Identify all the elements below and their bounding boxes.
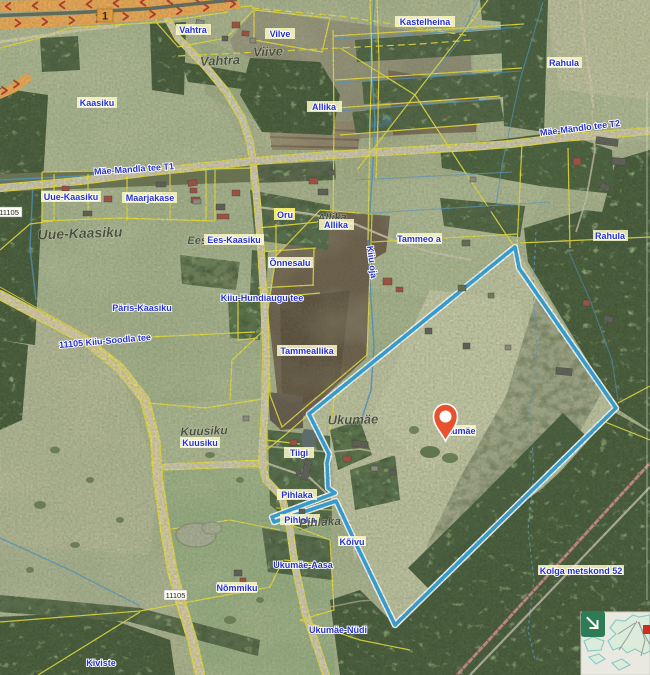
svg-text:Tammeo a: Tammeo a (397, 234, 442, 244)
svg-text:Uue-Kaasiku: Uue-Kaasiku (37, 224, 123, 243)
svg-text:Ukumäe: Ukumäe (328, 412, 379, 428)
svg-text:Maarjakase: Maarjakase (126, 193, 175, 203)
svg-text:Vahtra: Vahtra (179, 25, 208, 35)
svg-text:Õnnesalu: Õnnesalu (269, 258, 310, 268)
svg-text:11105: 11105 (0, 208, 19, 217)
svg-text:Kastelheina: Kastelheina (400, 17, 452, 27)
svg-text:Rahula: Rahula (595, 231, 626, 241)
svg-text:Kuusiku: Kuusiku (180, 423, 228, 439)
svg-text:Pihlaka: Pihlaka (299, 514, 342, 530)
svg-text:Kõivu: Kõivu (339, 537, 364, 547)
svg-text:Vilve: Vilve (270, 29, 291, 39)
svg-text:Rahula: Rahula (549, 58, 580, 68)
svg-text:Nõmmiku: Nõmmiku (216, 583, 257, 593)
svg-text:Ees-Kaasiku: Ees-Kaasiku (207, 235, 261, 245)
svg-text:1: 1 (102, 11, 108, 23)
svg-text:Oru: Oru (277, 210, 293, 220)
svg-text:11105: 11105 (166, 591, 186, 600)
svg-text:Allika: Allika (312, 102, 337, 112)
svg-text:Kaasiku: Kaasiku (80, 98, 115, 108)
svg-text:Tammeallika: Tammeallika (280, 346, 334, 356)
svg-text:Ukumäe-Nüdi: Ukumäe-Nüdi (309, 625, 367, 635)
svg-text:Kiiu-Hundiaugu tee: Kiiu-Hundiaugu tee (221, 293, 304, 303)
svg-text:Kuusiku: Kuusiku (182, 438, 218, 448)
svg-text:Tiigi: Tiigi (290, 448, 308, 458)
svg-text:Kolga metskond 52: Kolga metskond 52 (540, 566, 623, 576)
svg-text:Päris-Kaasiku: Päris-Kaasiku (112, 303, 172, 313)
svg-text:Pihlaka: Pihlaka (281, 490, 314, 500)
svg-text:Uue-Kaasiku: Uue-Kaasiku (44, 192, 99, 202)
svg-text:Vahtra: Vahtra (200, 52, 241, 69)
svg-text:Kiviste: Kiviste (86, 658, 116, 668)
svg-text:Ukumäe-Aasa: Ukumäe-Aasa (273, 560, 334, 570)
svg-text:Viive: Viive (253, 43, 283, 59)
svg-text:Allika: Allika (324, 220, 349, 230)
